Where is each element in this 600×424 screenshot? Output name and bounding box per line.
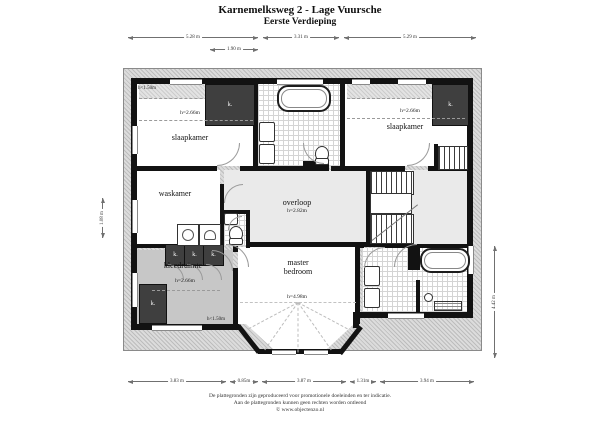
page-title: Karnemelksweg 2 - Lage Vuursche — [0, 4, 600, 16]
label-ceiling-kleedruimte: h=2.66m — [160, 279, 210, 285]
window-left-1 — [132, 126, 138, 154]
dim-left: 1.08 m — [102, 198, 103, 238]
wall-shower-partition — [416, 280, 420, 312]
washing-machine-door-icon — [182, 229, 194, 241]
wall-kleed-right-b — [233, 268, 238, 324]
bathtub-bottom — [420, 248, 470, 273]
wall-kleed-top — [131, 244, 167, 248]
dim-bottom-4-label: 1.31m — [355, 379, 372, 385]
label-waskamer: waskamer — [143, 189, 207, 198]
dim-bottom-2: 0.85m — [230, 381, 258, 382]
label-ceiling-overloop: h=2.82m — [272, 209, 322, 215]
label-low-ceiling-topleft: h<1.50m — [138, 86, 156, 91]
closet-right-bedroom: k. — [432, 84, 469, 126]
dim-top-inner-label: 1.90 m — [225, 47, 243, 53]
dim-bottom-5: 3.94 m — [380, 381, 474, 382]
dim-bottom-5-label: 3.94 m — [418, 379, 436, 385]
page-subtitle: Eerste Verdieping — [0, 17, 600, 27]
label-ceiling-master: h=4.98m — [272, 295, 322, 301]
dim-bottom-3-label: 3.87 m — [295, 379, 313, 385]
dim-top-1-label: 5.28 m — [184, 35, 202, 41]
bay-ray-3 — [298, 303, 299, 353]
dim-bottom-1: 3.83 m — [128, 381, 226, 382]
window-top-1 — [170, 79, 202, 85]
window-top-3 — [352, 79, 370, 85]
label-kleedruimte: kleedruimte — [143, 261, 223, 270]
dim-right: 4.42 m — [494, 246, 495, 358]
closet-label: k. — [228, 102, 233, 108]
shower-head-icon — [424, 293, 433, 302]
sink-top-2 — [259, 144, 275, 164]
dim-bottom-2-label: 0.85m — [236, 379, 253, 385]
shower-drain — [434, 301, 462, 311]
label-slaapkamer-left: slaapkamer — [150, 133, 230, 142]
closet-label: k. — [192, 252, 197, 258]
window-left-2 — [132, 200, 138, 233]
wall-bath-bottom-top-a — [358, 244, 364, 248]
label-ceiling-left-bedroom: h=2.66m — [165, 111, 215, 117]
label-master-line2: bedroom — [284, 267, 312, 276]
dash-ceiling-kleedruimte — [152, 290, 220, 291]
bay-wall-bottom — [258, 349, 342, 354]
footer-disclaimer-line2: Aan de plattegronden kunnen geen rechten… — [0, 400, 600, 407]
window-bottom-right — [388, 313, 424, 319]
wall-row1-c — [253, 166, 303, 171]
dim-top-3: 5.29 m — [344, 37, 476, 38]
bathtub-top — [277, 85, 331, 112]
window-left-3 — [132, 273, 138, 307]
stairs-lower-flight — [370, 214, 414, 244]
footer-copyright: © www.objectenzo.nl — [0, 407, 600, 414]
dim-top-1: 5.28 m — [128, 37, 258, 38]
bay-window-2 — [304, 350, 328, 355]
label-master-line1: master — [287, 258, 308, 267]
dim-left-label: 1.08 m — [100, 209, 106, 227]
label-slaapkamer-right: slaapkamer — [365, 122, 445, 131]
dim-bottom-1-label: 3.83 m — [168, 379, 186, 385]
label-master-bedroom: master bedroom — [258, 258, 338, 276]
dim-top-3-label: 5.29 m — [401, 35, 419, 41]
dim-top-2-label: 3.31 m — [292, 35, 310, 41]
hall-right — [412, 170, 467, 244]
dim-bottom-3: 3.87 m — [262, 381, 346, 382]
dim-top-2: 3.31 m — [263, 37, 339, 38]
window-top-4 — [398, 79, 426, 85]
closet-label: k. — [173, 252, 178, 258]
wall-bath-bed-right — [340, 78, 345, 170]
dim-top-inner: 1.90 m — [210, 49, 258, 50]
stairs-attic — [438, 146, 468, 170]
window-bottom-left — [152, 325, 202, 331]
stairs-landing — [370, 193, 412, 214]
dim-bottom-4: 1.31m — [350, 381, 376, 382]
wall-row1-a — [131, 166, 217, 171]
sink-bottom-1 — [364, 266, 380, 286]
label-overloop: overloop — [265, 198, 329, 207]
sink-bottom-2 — [364, 288, 380, 308]
dryer-drum-icon — [204, 230, 216, 240]
stairs-upper-flight — [370, 171, 414, 195]
dash-ceiling-right-bedroom — [347, 118, 465, 119]
dash-ceiling-left-bedroom — [139, 120, 253, 121]
bay-wall-connector — [353, 312, 359, 328]
sink-top-1 — [259, 122, 275, 142]
label-ceiling-right-bedroom: h=2.66m — [385, 109, 435, 115]
label-low-ceiling-bottom: h<1.50m — [207, 317, 225, 322]
footer-disclaimer-line1: De plattegronden zijn geproduceerd voor … — [0, 393, 600, 400]
dim-right-label: 4.42 m — [492, 293, 498, 311]
bay-window-1 — [272, 350, 296, 355]
wall-row1-b — [240, 166, 253, 171]
floorplan-page: Karnemelksweg 2 - Lage Vuursche Eerste V… — [0, 0, 600, 424]
closet-label: k. — [448, 102, 453, 108]
closet-label: k. — [151, 301, 156, 307]
